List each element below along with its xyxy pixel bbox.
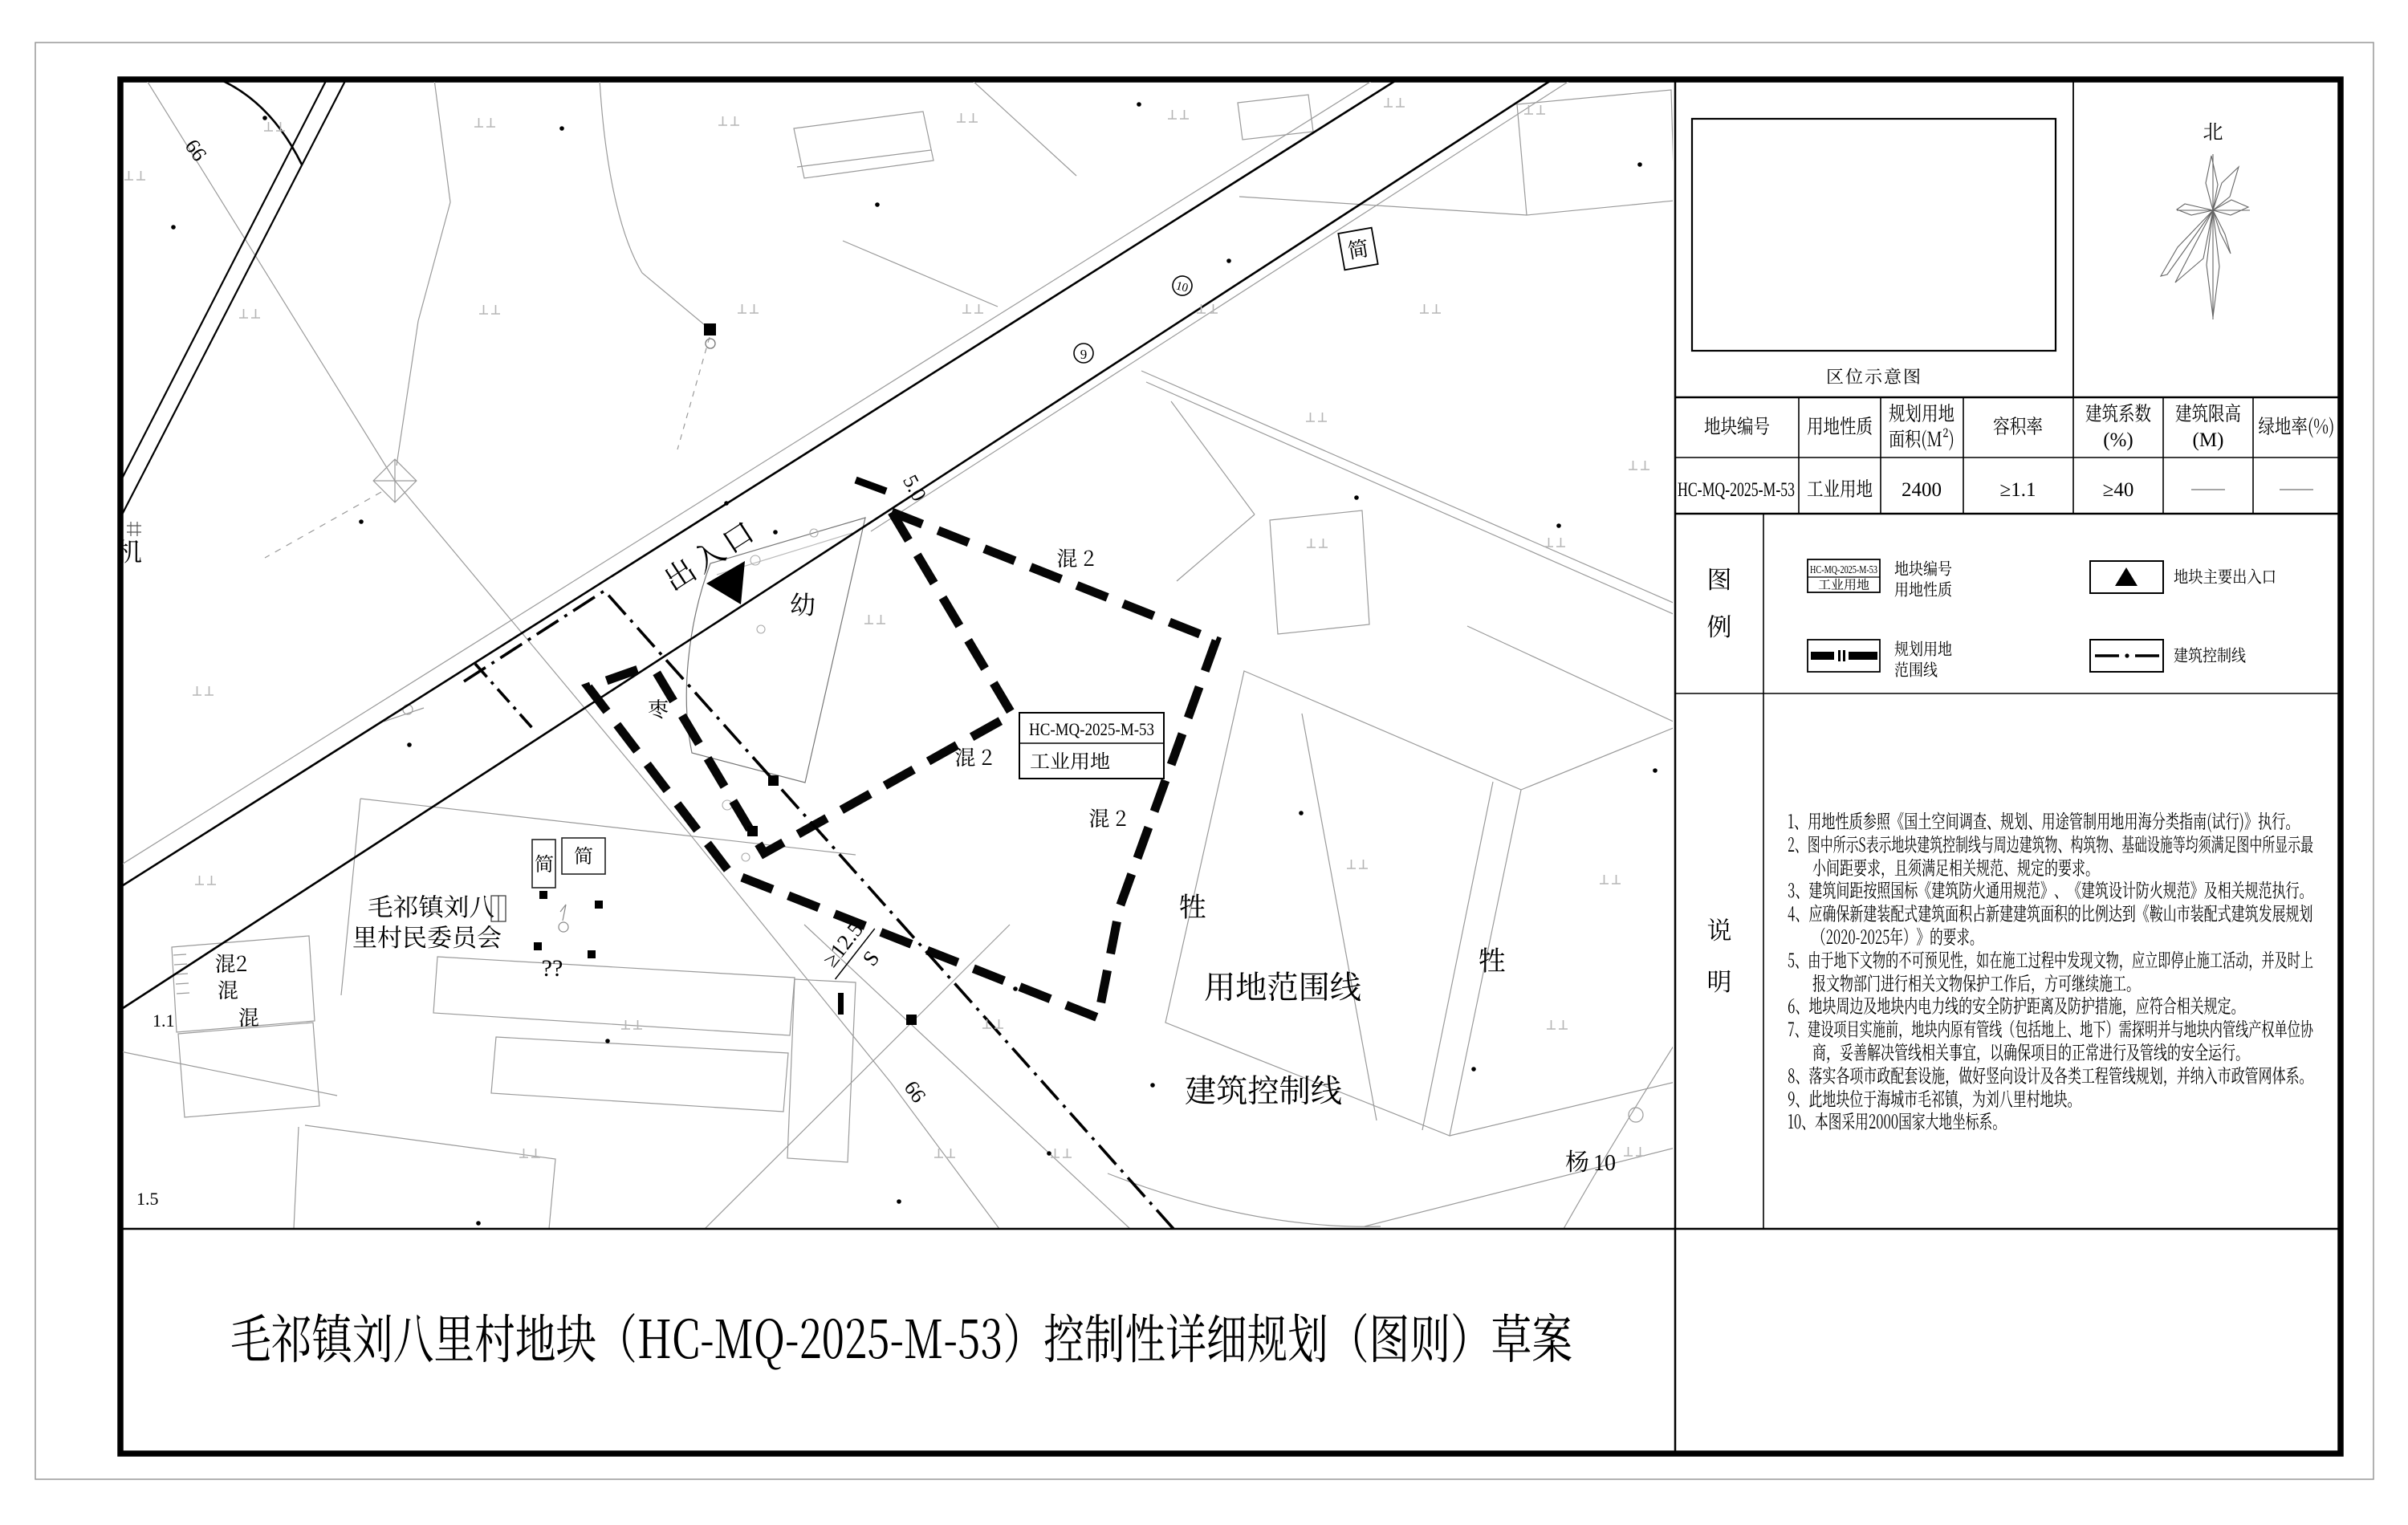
svg-text:2400: 2400 bbox=[1902, 479, 1942, 501]
svg-text:≥40: ≥40 bbox=[2103, 479, 2134, 501]
svg-text:9: 9 bbox=[1080, 347, 1088, 362]
svg-text:≥1.1: ≥1.1 bbox=[2000, 479, 2036, 501]
svg-text:HC-MQ-2025-M-53: HC-MQ-2025-M-53 bbox=[1678, 479, 1795, 501]
svg-text:??: ?? bbox=[542, 955, 563, 982]
svg-text:1.1: 1.1 bbox=[153, 1011, 175, 1031]
svg-text:1.5: 1.5 bbox=[136, 1189, 159, 1209]
svg-text:HC-MQ-2025-M-53: HC-MQ-2025-M-53 bbox=[1029, 719, 1154, 739]
svg-text:(M): (M) bbox=[2193, 429, 2224, 451]
svg-text:(%): (%) bbox=[2103, 429, 2133, 451]
svg-text:HC-MQ-2025-M-53: HC-MQ-2025-M-53 bbox=[1810, 564, 1877, 576]
svg-text:10: 10 bbox=[1593, 1151, 1616, 1176]
